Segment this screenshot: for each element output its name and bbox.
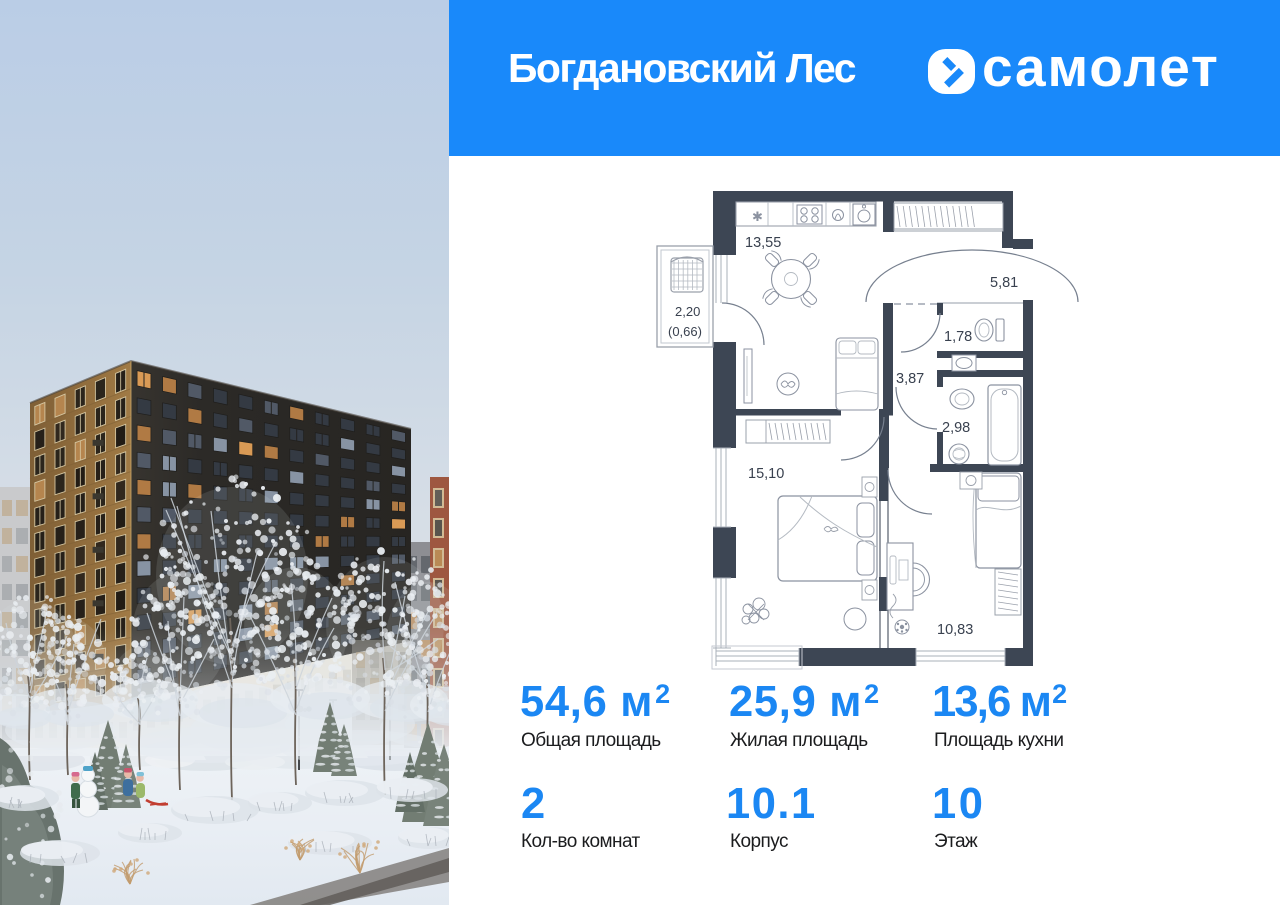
svg-text:3,87: 3,87: [896, 371, 924, 387]
svg-text:1,78: 1,78: [944, 329, 972, 345]
svg-text:15,10: 15,10: [748, 466, 784, 482]
svg-text:10,83: 10,83: [937, 622, 973, 638]
svg-text:2,20: 2,20: [675, 304, 700, 319]
svg-text:✱: ✱: [752, 209, 763, 224]
svg-text:5,81: 5,81: [990, 275, 1018, 291]
svg-text:2,98: 2,98: [942, 420, 970, 436]
svg-text:(0,66): (0,66): [668, 324, 702, 339]
svg-text:13,55: 13,55: [745, 235, 781, 251]
